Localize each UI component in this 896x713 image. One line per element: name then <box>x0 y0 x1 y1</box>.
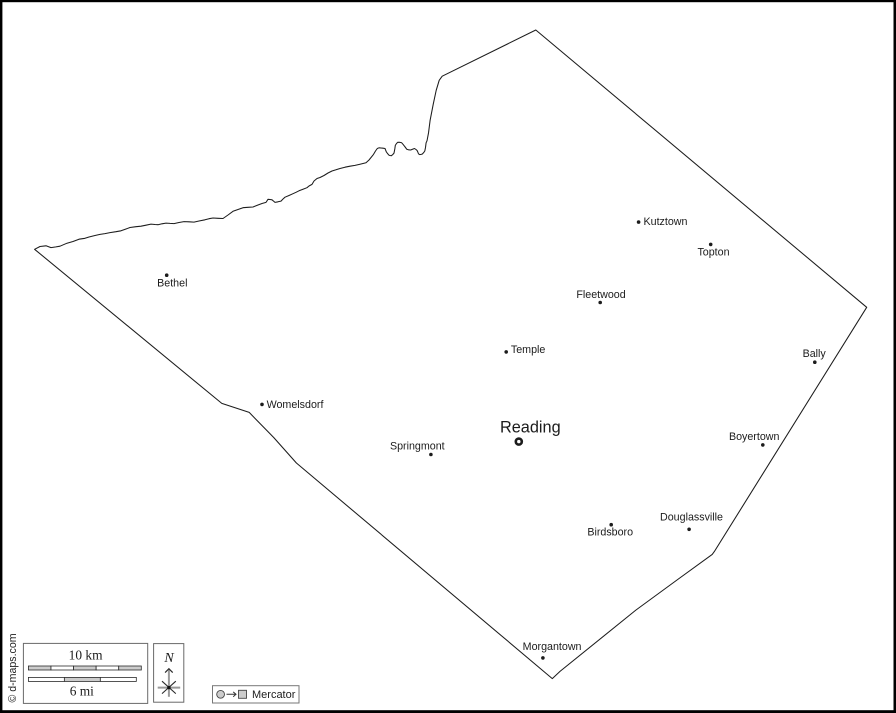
svg-text:Birdsboro: Birdsboro <box>587 527 633 539</box>
svg-text:Kutztown: Kutztown <box>644 216 688 228</box>
svg-text:Fleetwood: Fleetwood <box>576 289 625 301</box>
svg-text:Temple: Temple <box>511 344 546 356</box>
svg-text:© d-maps.com: © d-maps.com <box>7 633 19 702</box>
svg-text:Bally: Bally <box>803 348 827 360</box>
svg-text:Womelsdorf: Womelsdorf <box>267 399 324 411</box>
svg-text:Douglassville: Douglassville <box>660 512 723 524</box>
svg-text:Boyertown: Boyertown <box>729 431 780 443</box>
svg-text:Mercator: Mercator <box>252 689 296 701</box>
svg-text:Springmont: Springmont <box>390 440 445 452</box>
svg-text:Reading: Reading <box>500 419 561 437</box>
svg-text:Bethel: Bethel <box>157 278 187 290</box>
svg-text:6 mi: 6 mi <box>70 684 94 699</box>
svg-text:10 km: 10 km <box>69 648 103 663</box>
svg-text:Morgantown: Morgantown <box>523 641 582 653</box>
svg-text:N: N <box>163 651 174 666</box>
svg-text:Topton: Topton <box>697 247 729 259</box>
